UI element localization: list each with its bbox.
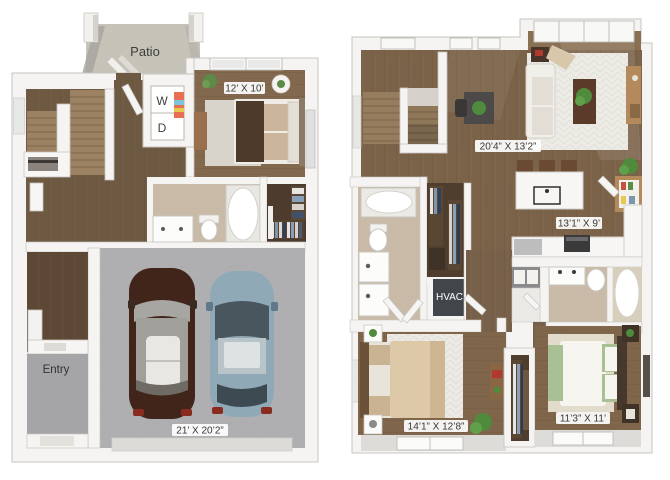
svg-text:Entry: Entry	[43, 364, 70, 376]
svg-text:11’3” X 11’: 11’3” X 11’	[560, 414, 606, 425]
svg-text:12’ X 10’: 12’ X 10’	[225, 84, 264, 95]
svg-text:D: D	[158, 121, 167, 135]
svg-text:HVAC: HVAC	[436, 292, 463, 303]
svg-text:14’1” X 12’8”: 14’1” X 12’8”	[408, 422, 465, 433]
svg-text:13’1” X 9’: 13’1” X 9’	[558, 219, 600, 230]
svg-text:Patio: Patio	[130, 44, 160, 59]
svg-text:W: W	[156, 94, 168, 108]
svg-text:21’ X 20’2”: 21’ X 20’2”	[176, 426, 223, 437]
svg-text:20’4” X 13’2”: 20’4” X 13’2”	[480, 142, 537, 153]
